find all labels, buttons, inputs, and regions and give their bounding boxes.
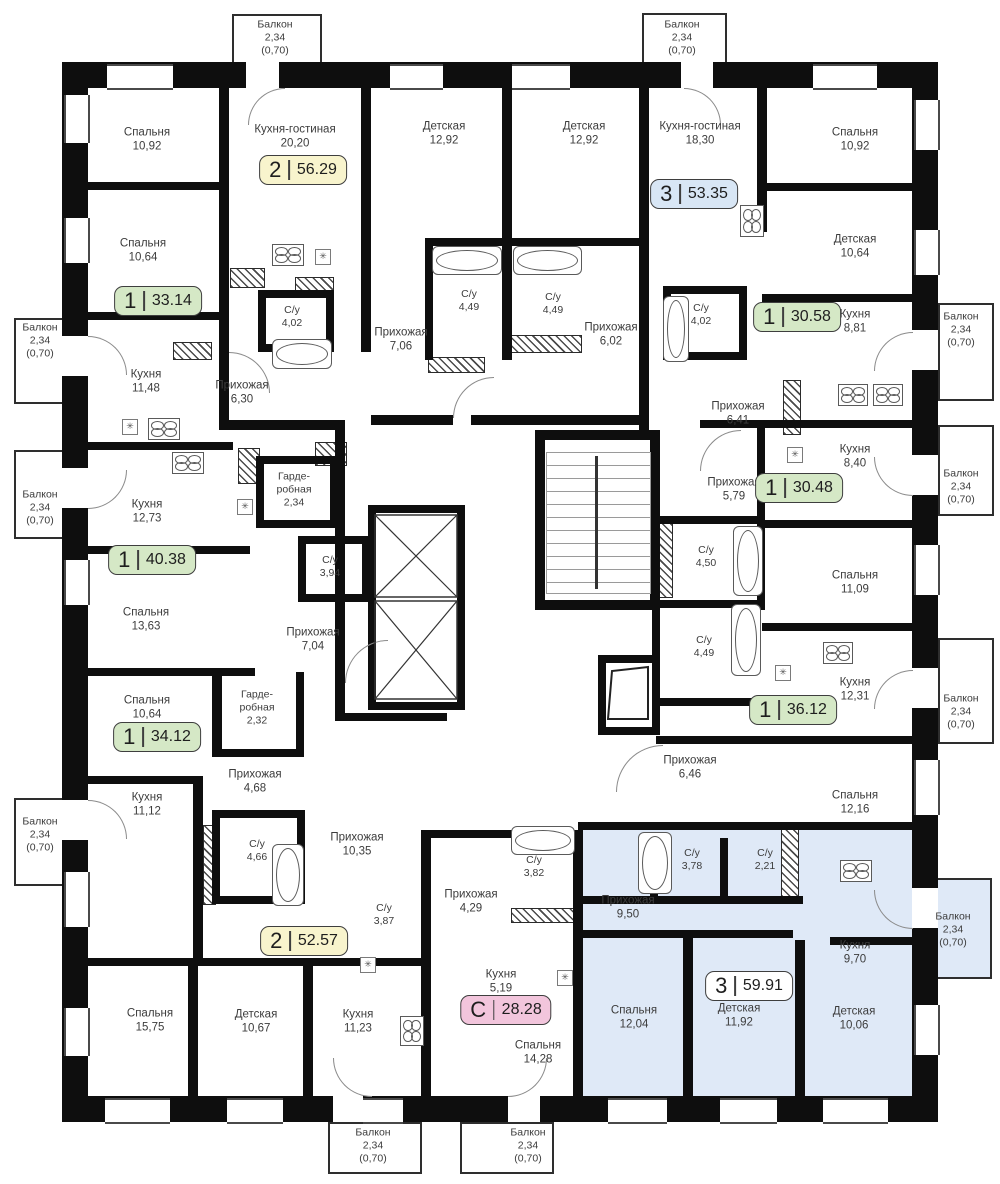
wall <box>193 776 203 966</box>
balcony-name: Балкон <box>355 1126 390 1139</box>
room-name: С/у <box>459 288 479 301</box>
window <box>363 1098 403 1124</box>
wall <box>471 415 639 425</box>
unit-rooms-count: 2 <box>270 928 282 954</box>
room-name: Детская <box>423 120 466 134</box>
room-label: С/у4,66 <box>247 838 267 864</box>
room-label: С/у3,87 <box>374 902 394 928</box>
room-label: С/у3,94 <box>320 554 340 580</box>
balcony-label: Балкон2,34(0,70) <box>943 467 978 506</box>
room-area: 10,92 <box>124 140 170 154</box>
door-arc-icon <box>453 377 494 418</box>
balcony-area: 2,34 <box>935 923 970 936</box>
stove-icon <box>400 1016 424 1046</box>
balcony-area: 2,34 <box>943 480 978 493</box>
door-opening <box>62 468 88 508</box>
balcony-name: Балкон <box>22 815 57 828</box>
door-opening <box>62 800 88 840</box>
wall <box>256 456 338 464</box>
room-name: С/у <box>694 634 714 647</box>
unit-rooms-count: 3 <box>715 973 727 999</box>
balcony-label: Балкон2,34(0,70) <box>664 18 699 57</box>
room-area: 12,92 <box>423 134 466 148</box>
room-label: Детская10,64 <box>834 233 877 262</box>
balcony-note: (0,70) <box>943 719 978 732</box>
room-label: Кухня9,70 <box>840 939 871 968</box>
wall <box>256 456 264 528</box>
window <box>64 95 90 143</box>
unit-area: 52.57 <box>298 932 338 950</box>
balcony-note: (0,70) <box>22 348 57 361</box>
room-name: Детская <box>834 233 877 247</box>
unit-rooms-count: 2 <box>269 157 281 183</box>
room-area: 4,49 <box>694 647 714 660</box>
balcony-label: Балкон2,34(0,70) <box>943 692 978 731</box>
window <box>720 1098 777 1124</box>
door-opening <box>912 668 938 708</box>
room-area: 11,92 <box>718 1016 761 1030</box>
wall <box>663 286 747 294</box>
room-area: 4,02 <box>691 315 711 328</box>
room-area: 6,41 <box>711 414 764 428</box>
room-label: Прихожая6,46 <box>663 754 716 783</box>
bathtub-icon <box>513 246 582 275</box>
room-area: 3,82 <box>524 867 544 880</box>
unit-badge[interactable]: 130.58 <box>753 302 841 332</box>
room-label: С/у3,82 <box>524 854 544 880</box>
room-name: Гарде­робная <box>229 688 285 714</box>
stove-icon <box>823 642 853 664</box>
room-area: 11,12 <box>132 805 163 819</box>
wall <box>421 833 431 1096</box>
wall <box>222 749 304 757</box>
wall <box>62 1096 938 1122</box>
balcony-note: (0,70) <box>943 337 978 350</box>
unit-area: 28.28 <box>502 1001 542 1019</box>
unit-area: 36.12 <box>787 701 827 719</box>
balcony-label: Балкон2,34(0,70) <box>22 488 57 527</box>
window <box>823 1098 888 1124</box>
washing-machine-icon: ✳ <box>237 499 253 515</box>
wall <box>652 516 764 524</box>
washing-machine-icon: ✳ <box>360 957 376 973</box>
room-name: С/у <box>755 847 775 860</box>
room-name: Спальня <box>123 606 169 620</box>
room-name: Прихожая <box>444 888 497 902</box>
wall <box>502 88 512 360</box>
washing-machine-icon: ✳ <box>775 665 791 681</box>
window <box>914 230 940 275</box>
room-name: Кухня <box>840 443 871 457</box>
wall <box>371 415 453 425</box>
room-name: С/у <box>543 291 563 304</box>
room-area: 10,64 <box>834 247 877 261</box>
unit-badge[interactable]: С28.28 <box>460 995 551 1025</box>
unit-rooms-count: 1 <box>759 697 771 723</box>
room-name: С/у <box>247 838 267 851</box>
door-arc-icon <box>248 88 285 125</box>
wall <box>535 430 545 610</box>
balcony-note: (0,70) <box>664 45 699 58</box>
unit-badge[interactable]: 140.38 <box>108 545 196 575</box>
wall <box>762 183 912 191</box>
wall <box>298 536 306 602</box>
room-label: Спальня10,92 <box>124 126 170 155</box>
room-name: Прихожая <box>707 476 760 490</box>
door-arc-icon <box>88 800 127 839</box>
room-label: Кухня11,48 <box>131 368 162 397</box>
room-area: 12,31 <box>840 690 871 704</box>
wall <box>795 940 805 1096</box>
room-area: 18,30 <box>659 134 740 148</box>
balcony-note: (0,70) <box>22 515 57 528</box>
hatched-wall <box>511 908 575 923</box>
door-opening <box>508 1096 540 1122</box>
room-label: Кухня8,81 <box>840 308 871 337</box>
wall <box>683 935 693 1096</box>
door-arc-icon <box>874 670 913 709</box>
washing-machine-icon: ✳ <box>315 249 331 265</box>
door-arc-icon <box>333 1058 372 1097</box>
staircase-icon <box>546 452 651 594</box>
room-name: Спальня <box>832 789 878 803</box>
room-area: 8,81 <box>840 322 871 336</box>
room-label: С/у4,02 <box>282 304 302 330</box>
unit-area: 30.58 <box>791 308 831 326</box>
room-label: Гарде­робная2,34 <box>266 470 322 509</box>
room-label: Спальня12,04 <box>611 1004 657 1033</box>
room-name: Кухня <box>840 939 871 953</box>
badge-divider <box>289 931 291 951</box>
stove-icon <box>838 384 868 406</box>
room-area: 10,64 <box>120 251 166 265</box>
wall <box>298 594 370 602</box>
wall <box>361 88 371 352</box>
room-area: 12,16 <box>832 803 878 817</box>
room-name: Спальня <box>515 1039 561 1053</box>
balcony-note: (0,70) <box>510 1153 545 1166</box>
wall <box>212 810 305 818</box>
balcony-area: 2,34 <box>22 334 57 347</box>
room-area: 13,63 <box>123 620 169 634</box>
wall <box>335 713 447 721</box>
window <box>64 872 90 927</box>
wall <box>762 623 912 631</box>
wall <box>212 672 222 757</box>
room-name: Спальня <box>611 1004 657 1018</box>
room-label: С/у4,49 <box>543 291 563 317</box>
unit-badge[interactable]: 353.35 <box>650 179 738 209</box>
window <box>105 1098 170 1124</box>
room-area: 14,28 <box>515 1053 561 1067</box>
room-area: 12,73 <box>132 512 163 526</box>
room-area: 2,21 <box>755 860 775 873</box>
garbage-chute-icon <box>602 663 654 725</box>
room-area: 4,66 <box>247 851 267 864</box>
balcony-note: (0,70) <box>355 1153 390 1166</box>
room-name: Прихожая <box>286 626 339 640</box>
balcony-label: Балкон2,34(0,70) <box>510 1126 545 1165</box>
room-name: Детская <box>718 1002 761 1016</box>
room-label: Кухня5,19 <box>486 968 517 997</box>
balcony-area: 2,34 <box>257 31 292 44</box>
unit-badge[interactable]: 256.29 <box>259 155 347 185</box>
wall <box>62 668 255 676</box>
badge-divider <box>493 1000 495 1020</box>
wall <box>535 430 660 440</box>
room-name: Прихожая <box>330 831 383 845</box>
washing-machine-icon: ✳ <box>557 970 573 986</box>
room-name: Гарде­робная <box>266 470 322 496</box>
unit-badge[interactable]: 136.12 <box>749 695 837 725</box>
unit-area: 53.35 <box>688 185 728 203</box>
wall <box>212 810 220 904</box>
balcony-name: Балкон <box>257 18 292 31</box>
unit-area: 34.12 <box>151 728 191 746</box>
wall <box>229 420 345 430</box>
balcony-note: (0,70) <box>257 45 292 58</box>
room-label: Кухня12,31 <box>840 676 871 705</box>
room-name: Кухня-гостиная <box>659 120 740 134</box>
room-name: Кухня <box>840 676 871 690</box>
room-name: Детская <box>833 1005 876 1019</box>
room-label: Спальня10,92 <box>832 126 878 155</box>
room-name: Спальня <box>124 126 170 140</box>
stove-icon <box>272 244 304 266</box>
room-area: 10,67 <box>235 1022 278 1036</box>
room-area: 4,49 <box>543 304 563 317</box>
wall <box>739 286 747 360</box>
hatched-wall <box>428 357 485 373</box>
room-name: С/у <box>524 854 544 867</box>
room-label: Гарде­робная2,32 <box>229 688 285 727</box>
balcony-area: 2,34 <box>22 828 57 841</box>
door-opening <box>681 62 713 88</box>
badge-divider <box>782 307 784 327</box>
room-name: Прихожая <box>215 379 268 393</box>
room-name: Спальня <box>832 569 878 583</box>
balcony-area: 2,34 <box>510 1139 545 1152</box>
wall <box>598 655 660 663</box>
window <box>512 64 570 90</box>
balcony-area: 2,34 <box>22 501 57 514</box>
room-label: Детская12,92 <box>563 120 606 149</box>
door-arc-icon <box>874 332 913 371</box>
balcony-name: Балкон <box>510 1126 545 1139</box>
floor-plan-canvas: ✳✳✳✳✳✳✳Спальня10,92Кухня-гостиная20,20Де… <box>0 0 1000 1184</box>
wall <box>457 505 465 710</box>
room-label: Кухня11,23 <box>343 1008 374 1037</box>
room-label: Спальня14,28 <box>515 1039 561 1068</box>
wall <box>296 672 304 757</box>
room-area: 12,92 <box>563 134 606 148</box>
window <box>390 64 443 90</box>
window <box>107 64 173 90</box>
room-area: 4,68 <box>228 782 281 796</box>
unit-badge[interactable]: 359.91 <box>705 971 793 1001</box>
balcony-note: (0,70) <box>935 937 970 950</box>
bathtub-icon <box>733 526 763 596</box>
bathtub-icon <box>731 604 761 676</box>
unit-area: 30.48 <box>793 479 833 497</box>
room-name: Прихожая <box>228 768 281 782</box>
wall <box>62 182 225 190</box>
washing-machine-icon: ✳ <box>787 447 803 463</box>
elevator-shaft-icon <box>374 600 458 700</box>
room-name: Детская <box>563 120 606 134</box>
badge-divider <box>734 976 736 996</box>
unit-badge[interactable]: 130.48 <box>755 473 843 503</box>
wall <box>330 456 338 528</box>
room-name: Спальня <box>127 1007 173 1021</box>
room-area: 10,35 <box>330 845 383 859</box>
unit-badge[interactable]: 134.12 <box>113 722 201 752</box>
room-name: Прихожая <box>601 894 654 908</box>
room-name: С/у <box>374 902 394 915</box>
door-arc-icon <box>88 336 127 375</box>
balcony-note: (0,70) <box>22 842 57 855</box>
room-label: С/у4,02 <box>691 302 711 328</box>
room-label: Кухня-гостиная18,30 <box>659 120 740 149</box>
room-area: 11,09 <box>832 583 878 597</box>
bathtub-icon <box>638 832 672 894</box>
unit-badge[interactable]: 133.14 <box>114 286 202 316</box>
room-name: С/у <box>320 554 340 567</box>
door-opening <box>912 888 938 928</box>
room-name: Спальня <box>120 237 166 251</box>
wall <box>62 776 193 784</box>
room-label: Детская10,06 <box>833 1005 876 1034</box>
badge-divider <box>288 160 290 180</box>
balcony-label: Балкон2,34(0,70) <box>257 18 292 57</box>
balcony-area: 2,34 <box>943 705 978 718</box>
hatched-wall <box>508 335 582 353</box>
room-area: 7,04 <box>286 640 339 654</box>
bathtub-icon <box>272 844 304 906</box>
room-area: 3,78 <box>682 860 702 873</box>
room-name: Кухня-гостиная <box>254 123 335 137</box>
unit-rooms-count: 1 <box>763 304 775 330</box>
balcony-label: Балкон2,34(0,70) <box>22 321 57 360</box>
balcony-note: (0,70) <box>943 494 978 507</box>
room-label: С/у4,50 <box>696 544 716 570</box>
window <box>914 1005 940 1055</box>
room-area: 12,04 <box>611 1018 657 1032</box>
door-opening <box>62 336 88 376</box>
balcony-name: Балкон <box>22 488 57 501</box>
door-arc-icon <box>874 457 913 496</box>
wall <box>762 294 912 302</box>
room-name: Спальня <box>832 126 878 140</box>
room-name: Детская <box>235 1008 278 1022</box>
staircase-rail <box>595 456 598 589</box>
room-label: Спальня12,16 <box>832 789 878 818</box>
hatched-wall <box>173 342 212 360</box>
door-arc-icon <box>88 470 127 509</box>
window <box>914 760 940 815</box>
balcony-area: 2,34 <box>664 31 699 44</box>
balcony-name: Балкон <box>935 910 970 923</box>
room-label: Спальня13,63 <box>123 606 169 635</box>
room-name: Спальня <box>124 694 170 708</box>
room-area: 15,75 <box>127 1021 173 1035</box>
door-arc-icon <box>616 745 663 792</box>
badge-divider <box>137 550 139 570</box>
wall <box>535 600 660 610</box>
balcony-area: 2,34 <box>943 323 978 336</box>
unit-rooms-count: 1 <box>118 547 130 573</box>
room-label: С/у4,49 <box>694 634 714 660</box>
room-name: С/у <box>696 544 716 557</box>
wall <box>62 442 233 450</box>
window <box>914 545 940 595</box>
wall <box>425 238 641 246</box>
window <box>608 1098 667 1124</box>
room-label: Кухня-гостиная20,20 <box>254 123 335 152</box>
washing-machine-icon: ✳ <box>122 419 138 435</box>
room-name: Прихожая <box>711 400 764 414</box>
stove-icon <box>740 205 764 237</box>
room-name: Прихожая <box>663 754 716 768</box>
unit-area: 40.38 <box>146 551 186 569</box>
room-name: Кухня <box>132 498 163 512</box>
room-area: 10,92 <box>832 140 878 154</box>
door-opening <box>246 62 279 88</box>
room-area: 6,46 <box>663 768 716 782</box>
door-opening <box>912 330 938 370</box>
wall <box>573 830 583 1096</box>
wall <box>652 698 764 706</box>
wall <box>720 838 728 900</box>
wall <box>303 958 313 1096</box>
unit-area: 33.14 <box>152 292 192 310</box>
room-area: 6,02 <box>584 335 637 349</box>
balcony-name: Балкон <box>22 321 57 334</box>
stove-icon <box>172 452 204 474</box>
door-opening <box>333 1096 363 1122</box>
door-arc-icon <box>700 430 741 471</box>
room-area: 3,94 <box>320 567 340 580</box>
wall <box>762 520 912 528</box>
balcony-label: Балкон2,34(0,70) <box>355 1126 390 1165</box>
door-opening <box>912 455 938 495</box>
room-label: С/у4,49 <box>459 288 479 314</box>
hatched-wall <box>781 826 799 898</box>
room-label: Прихожая7,04 <box>286 626 339 655</box>
room-label: Детская11,92 <box>718 1002 761 1031</box>
room-label: Детская10,67 <box>235 1008 278 1037</box>
unit-badge[interactable]: 252.57 <box>260 926 348 956</box>
balcony-name: Балкон <box>943 467 978 480</box>
stove-icon <box>840 860 872 882</box>
bathtub-icon <box>272 339 332 369</box>
room-label: Кухня11,12 <box>132 791 163 820</box>
unit-rooms-count: С <box>470 997 486 1023</box>
wall <box>639 88 649 430</box>
balcony-label: Балкон2,34(0,70) <box>943 310 978 349</box>
window <box>914 100 940 150</box>
room-label: Прихожая9,50 <box>601 894 654 923</box>
room-area: 11,23 <box>343 1022 374 1036</box>
room-label: Прихожая5,79 <box>707 476 760 505</box>
room-label: Прихожая10,35 <box>330 831 383 860</box>
unit-area: 59.91 <box>743 977 783 995</box>
wall <box>188 958 198 1096</box>
wall <box>368 702 465 710</box>
balcony-area: 2,34 <box>355 1139 390 1152</box>
bathtub-icon <box>663 296 689 362</box>
room-label: Кухня8,40 <box>840 443 871 472</box>
